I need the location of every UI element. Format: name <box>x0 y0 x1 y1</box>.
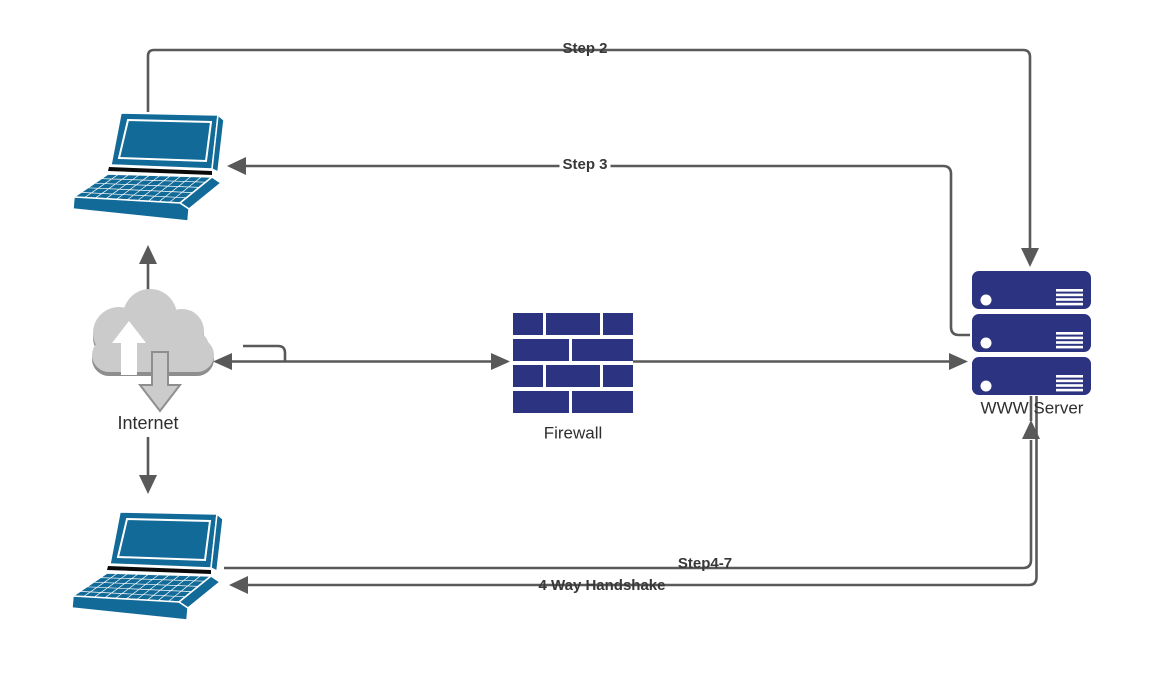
connector-label-step4-7: Step4-7 <box>678 556 732 573</box>
connector-internet-to-client-bottom[interactable] <box>139 437 157 494</box>
connector-step3[interactable] <box>227 157 970 335</box>
connector-handshake[interactable] <box>229 396 1037 594</box>
arrowhead-right-icon <box>949 353 968 370</box>
firewall-bricks-icon[interactable] <box>513 313 633 413</box>
connector-step4-7[interactable] <box>224 396 1040 568</box>
connector-label-step3: Step 3 <box>559 157 610 174</box>
arrowhead-left-icon <box>227 157 246 175</box>
connector-firewall-to-server[interactable] <box>633 353 968 370</box>
arrowhead-down-icon <box>139 475 157 494</box>
server-unit-top <box>972 271 1091 309</box>
server-unit-bottom <box>972 357 1091 395</box>
node-label-firewall: Firewall <box>544 425 603 444</box>
arrowhead-up-icon <box>139 245 157 264</box>
arrowhead-left-icon <box>213 353 232 370</box>
laptop-icon[interactable] <box>72 512 223 620</box>
connector-label-handshake: 4 Way Handshake <box>539 578 666 595</box>
internet-node[interactable] <box>92 289 214 411</box>
diagram-canvas: Step 2 Step 3 Step4-7 4 Way Handshake In… <box>0 0 1163 695</box>
laptop-icon[interactable] <box>73 113 224 221</box>
node-label-internet: Internet <box>117 414 178 434</box>
arrowhead-down-icon <box>1021 248 1039 267</box>
server-stack-icon[interactable] <box>972 271 1091 395</box>
node-label-www-server: WWW Server <box>981 400 1084 419</box>
connector-internet-firewall[interactable] <box>213 346 510 370</box>
server-unit-middle <box>972 314 1091 352</box>
arrowhead-left-icon <box>229 576 248 594</box>
arrowhead-right-icon <box>491 353 510 370</box>
connector-label-step2: Step 2 <box>562 41 607 58</box>
